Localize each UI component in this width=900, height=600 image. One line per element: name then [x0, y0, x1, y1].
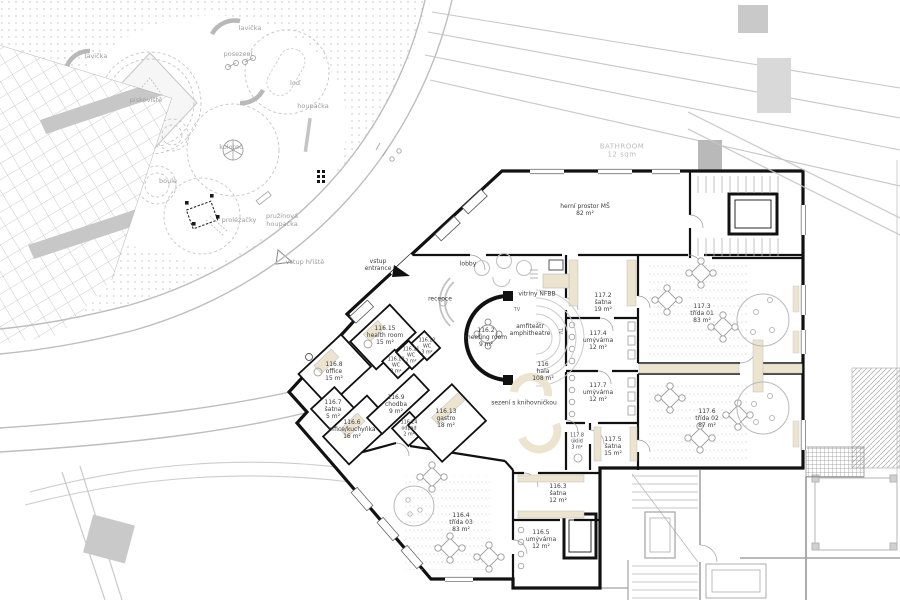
- floor-plan-drawing: [0, 0, 900, 600]
- stairs-lower: [632, 474, 698, 598]
- terrace: [812, 475, 897, 550]
- adjacent-building: [600, 447, 900, 600]
- viaduct-pier: [757, 58, 791, 113]
- rail-lines: [425, 12, 900, 186]
- site-bottom-left: [62, 466, 134, 600]
- floor-plan-sheet: lavička lavička posezení loď pískoviště …: [0, 0, 900, 600]
- hatch-terrace: [806, 447, 864, 477]
- road-markings: [376, 143, 401, 161]
- building-floor-plan: [289, 112, 900, 588]
- elevator-lower: [645, 512, 675, 558]
- viaduct-pier-2: [738, 5, 768, 33]
